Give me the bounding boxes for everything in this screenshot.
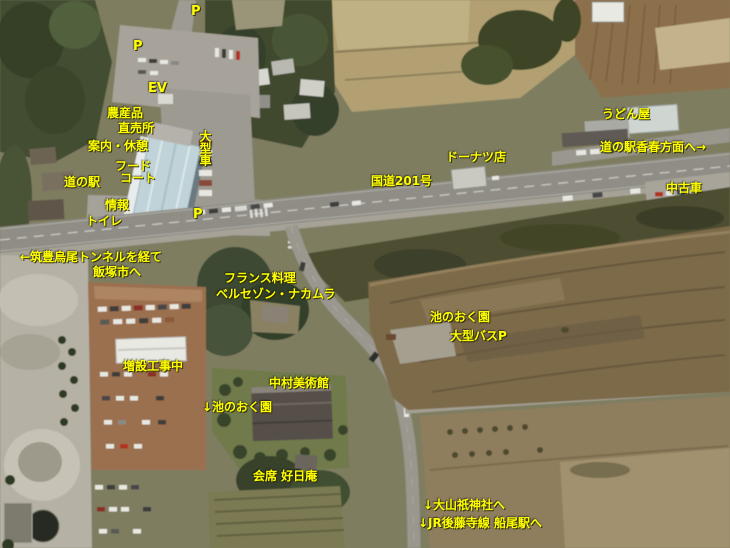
satellite-imagery xyxy=(0,0,730,548)
museum-garden xyxy=(212,368,349,472)
aerial-map: P P EV 農産品 直売所 案内・休憩 フード コート 道の駅 情報 トイレ … xyxy=(0,0,730,548)
cleared-lot xyxy=(0,255,92,548)
